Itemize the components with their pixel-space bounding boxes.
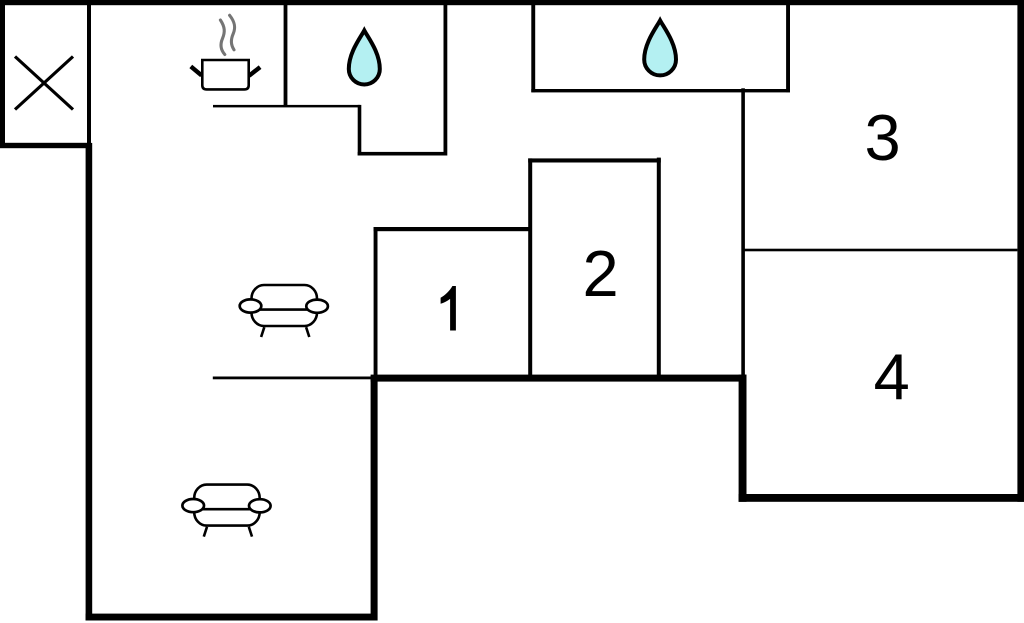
svg-text:3: 3 xyxy=(865,101,901,174)
svg-text:4: 4 xyxy=(874,340,910,413)
svg-text:2: 2 xyxy=(583,237,619,310)
